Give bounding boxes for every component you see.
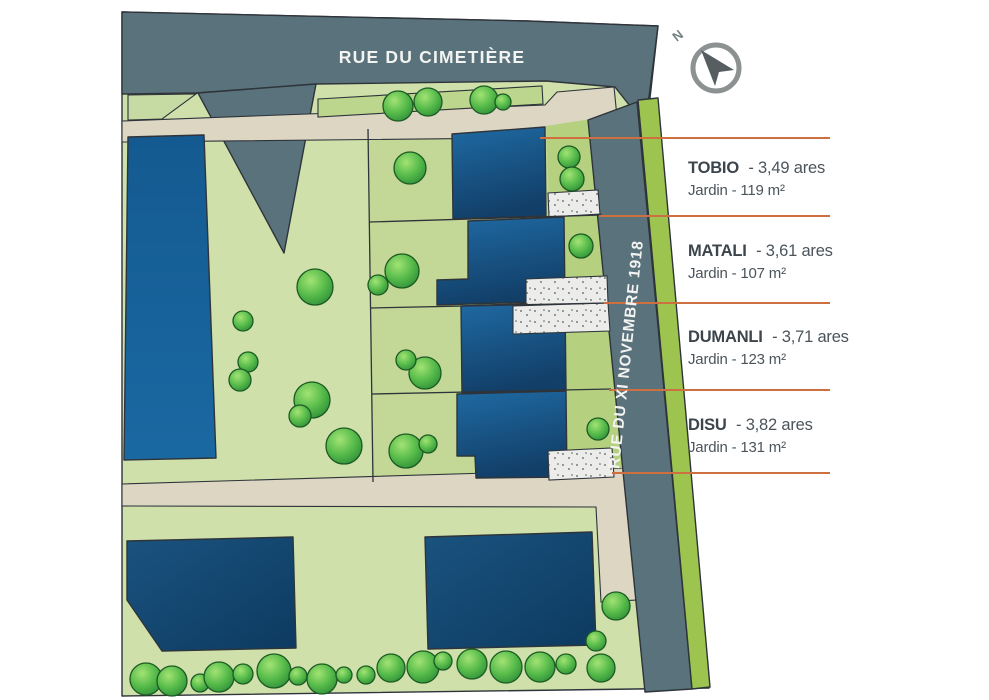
lot-name: DISU	[688, 416, 727, 434]
lot-garden: Jardin - 131 m²	[688, 439, 786, 456]
lot-name: TOBIO	[688, 159, 739, 177]
lot-garden: Jardin - 119 m²	[688, 182, 785, 199]
svg-text:DISU - 3,82 ares: DISU - 3,82 ares	[688, 416, 813, 434]
lot-garden: Jardin - 123 m²	[688, 351, 786, 368]
lot-area: - 3,71 ares	[772, 328, 849, 346]
lot-name: DUMANLI	[688, 328, 763, 346]
site-plan: RUE DU CIMETIÈRE RUE DU XI NOVEMBRE 1918…	[0, 0, 989, 700]
top-street-label: RUE DU CIMETIÈRE	[339, 46, 525, 67]
compass-north-label: N	[669, 27, 686, 45]
lot-area: - 3,82 ares	[736, 416, 813, 434]
lot-label-matali: MATALI - 3,61 ares Jardin - 107 m²	[688, 242, 833, 282]
lot-label-tobio: TOBIO - 3,49 ares Jardin - 119 m²	[688, 159, 825, 199]
svg-text:TOBIO - 3,49 ares: TOBIO - 3,49 ares	[688, 159, 825, 177]
lot-area: - 3,61 ares	[756, 242, 833, 260]
lot-label-disu: DISU - 3,82 ares Jardin - 131 m²	[688, 416, 813, 456]
compass-arrow-icon	[701, 50, 734, 86]
lot-garden: Jardin - 107 m²	[688, 265, 786, 282]
lot-label-dumanli: DUMANLI - 3,71 ares Jardin - 123 m²	[688, 328, 849, 368]
lot-area: - 3,49 ares	[748, 159, 825, 177]
compass: N	[669, 27, 739, 91]
plan-svg: RUE DU CIMETIÈRE RUE DU XI NOVEMBRE 1918…	[0, 0, 989, 700]
lot-labels: TOBIO - 3,49 ares Jardin - 119 m² MATALI…	[688, 159, 849, 456]
svg-text:DUMANLI - 3,71 ares: DUMANLI - 3,71 ares	[688, 328, 849, 346]
svg-text:MATALI - 3,61 ares: MATALI - 3,61 ares	[688, 242, 833, 260]
lot-name: MATALI	[688, 242, 747, 260]
